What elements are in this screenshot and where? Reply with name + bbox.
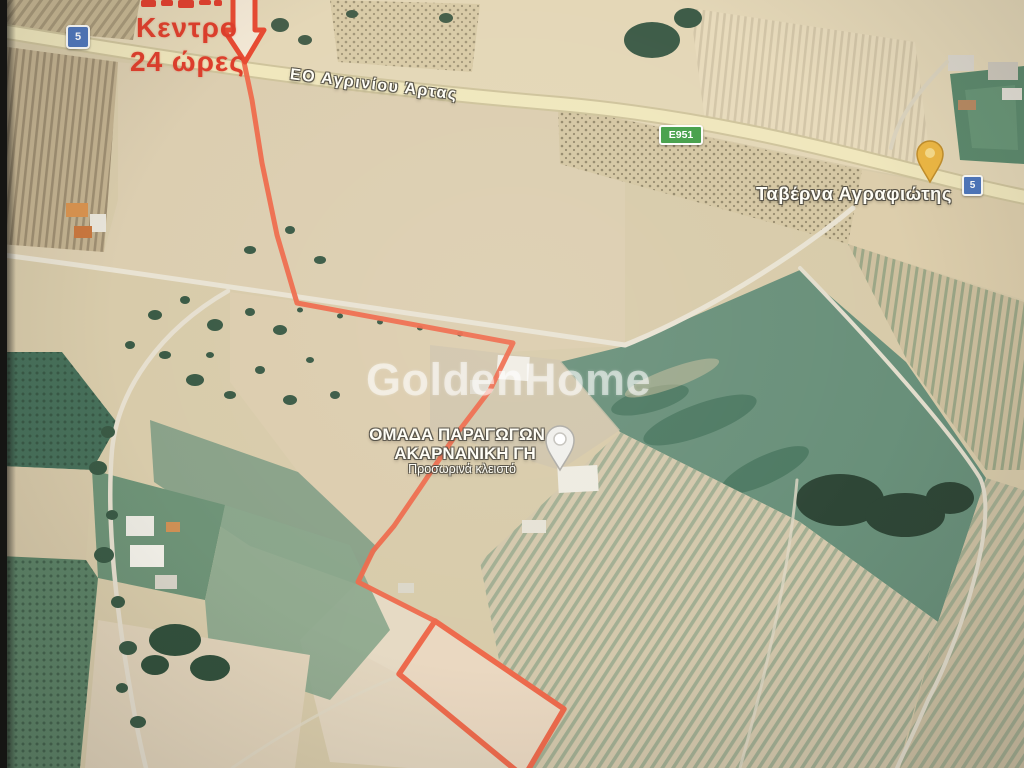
- producers-label-line1[interactable]: ΟΜΑΔΑ ΠΑΡΑΓΩΓΩΝ: [337, 426, 577, 445]
- annotation-text-line2: 24 ώρες: [130, 47, 245, 78]
- route-line: [244, 62, 513, 621]
- national-road-shield-right: 5: [962, 175, 983, 196]
- producers-label-line2[interactable]: ΑΚΑΡΝΑΝΙΚΗ ΓΗ: [345, 445, 585, 464]
- tavern-pin-icon[interactable]: [917, 141, 943, 182]
- national-road-shield-left: 5: [66, 25, 90, 49]
- map-canvas[interactable]: GoldenHome ΕΟ Αγρινίου Άρτας Ταβέρνα Αγρ…: [0, 0, 1024, 768]
- screen-bezel-edge: [0, 0, 7, 768]
- watermark: GoldenHome: [366, 354, 651, 406]
- tavern-label[interactable]: Ταβέρνα Αγραφιώτης: [756, 184, 952, 204]
- annotation-text-line1: Κεντρο: [136, 13, 238, 44]
- european-road-shield: E951: [659, 125, 703, 145]
- screen-bezel-shadow: [7, 0, 16, 768]
- parcel-boundary-polygon: [399, 621, 564, 768]
- producers-status-label: Προσωρινά κλειστό: [342, 463, 582, 477]
- clipped-red-text: [141, 0, 222, 8]
